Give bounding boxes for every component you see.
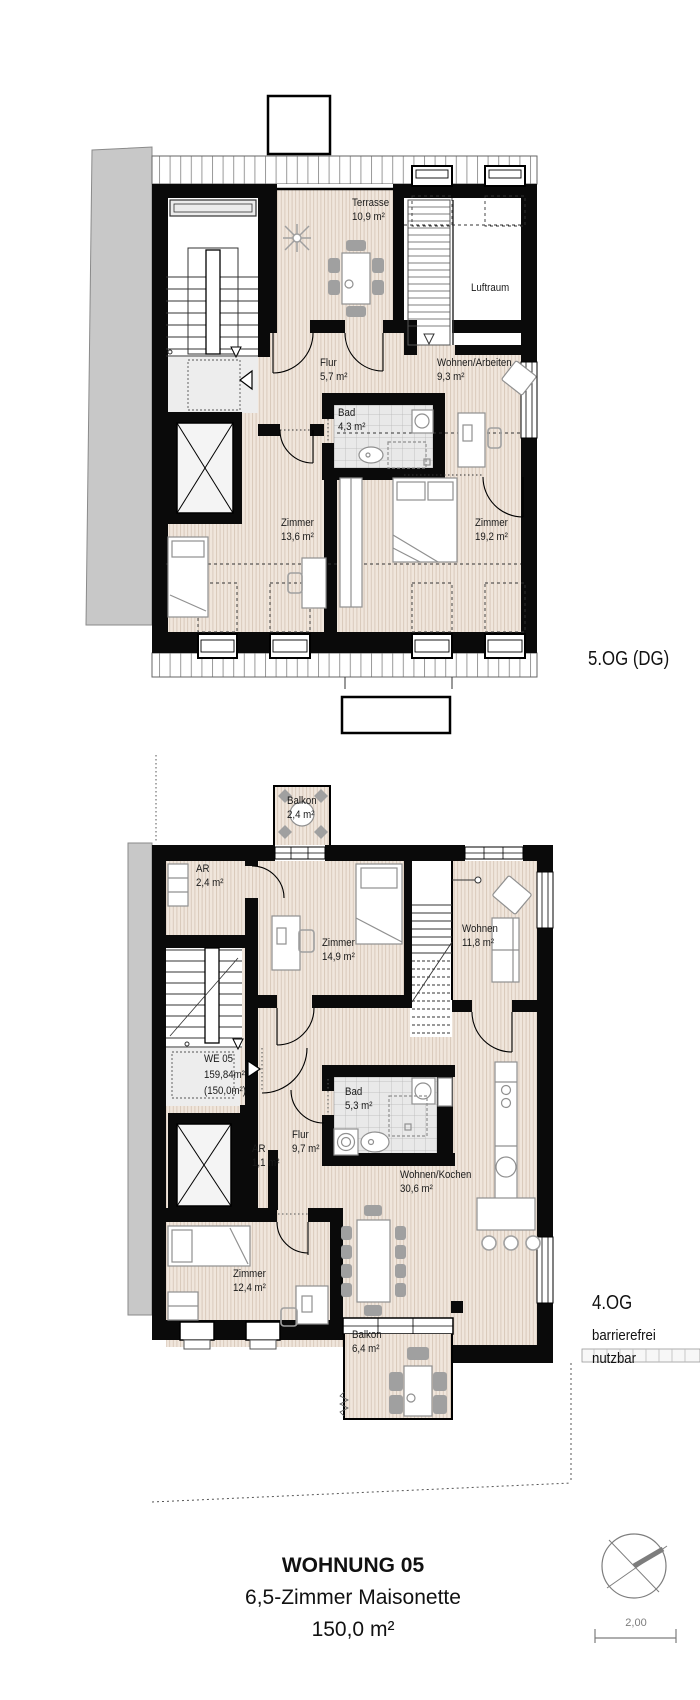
upper-floor-plan — [86, 96, 537, 689]
room-label-zimmer-124: Zimmer12,4 m² — [233, 1267, 266, 1295]
sheet-area: 150,0 m² — [0, 1618, 700, 1642]
room-label-bad-og4: Bad5,3 m² — [345, 1085, 372, 1113]
floor-label-4og: 4.OG — [592, 1292, 632, 1314]
scale-value: 2,00 — [597, 1617, 675, 1629]
floor-note-line1: barrierefrei — [592, 1324, 656, 1347]
floor-label-5og: 5.OG (DG) — [588, 648, 669, 670]
room-label-wohnen: Wohnen11,8 m² — [462, 922, 498, 950]
room-label-balkon-nord: Balkon2,4 m² — [287, 794, 317, 822]
neighbour-wall — [86, 147, 152, 625]
chimney — [268, 96, 330, 154]
room-label-luftraum: Luftraum — [471, 281, 509, 295]
sheet-subtitle: 6,5-Zimmer Maisonette — [0, 1586, 700, 1610]
neighbour-wall — [128, 843, 152, 1315]
room-label-bad-og5: Bad4,3 m² — [338, 406, 365, 434]
sheet-title: WOHNUNG 05 — [0, 1554, 700, 1578]
floor-note-line2: nutzbar — [592, 1347, 636, 1370]
room-label-flur-og4: Flur9,7 m² — [292, 1128, 319, 1156]
room-label-wohnen-arbeiten: Wohnen/Arbeiten9,3 m² — [437, 356, 512, 384]
room-label-terrasse: Terrasse10,9 m² — [352, 196, 389, 224]
roof-box — [342, 697, 450, 733]
room-label-flur-og5: Flur5,7 m² — [320, 356, 347, 384]
room-label-zimmer-149: Zimmer14,9 m² — [322, 936, 355, 964]
room-label-balkon-sued: Balkon6,4 m² — [352, 1328, 382, 1356]
elevator-lower — [177, 1124, 231, 1206]
floor-plan-sheet: Terrasse10,9 m² Luftraum Flur5,7 m² Wohn… — [0, 0, 700, 1700]
room-label-zimmer-136: Zimmer13,6 m² — [281, 516, 314, 544]
unit-label-we05: WE 05159,84m²(150,0m²) — [204, 1051, 246, 1099]
room-label-wohnen-kochen: Wohnen/Kochen30,6 m² — [400, 1168, 471, 1196]
room-label-zimmer-192: Zimmer19,2 m² — [475, 516, 508, 544]
elevator-upper — [177, 423, 233, 513]
lower-floor-plan — [128, 697, 700, 1502]
floor-plan-drawing — [0, 0, 700, 1700]
room-label-ar-klein: AR1,1 m² — [252, 1142, 279, 1170]
room-label-ar-gross: AR2,4 m² — [196, 862, 223, 890]
